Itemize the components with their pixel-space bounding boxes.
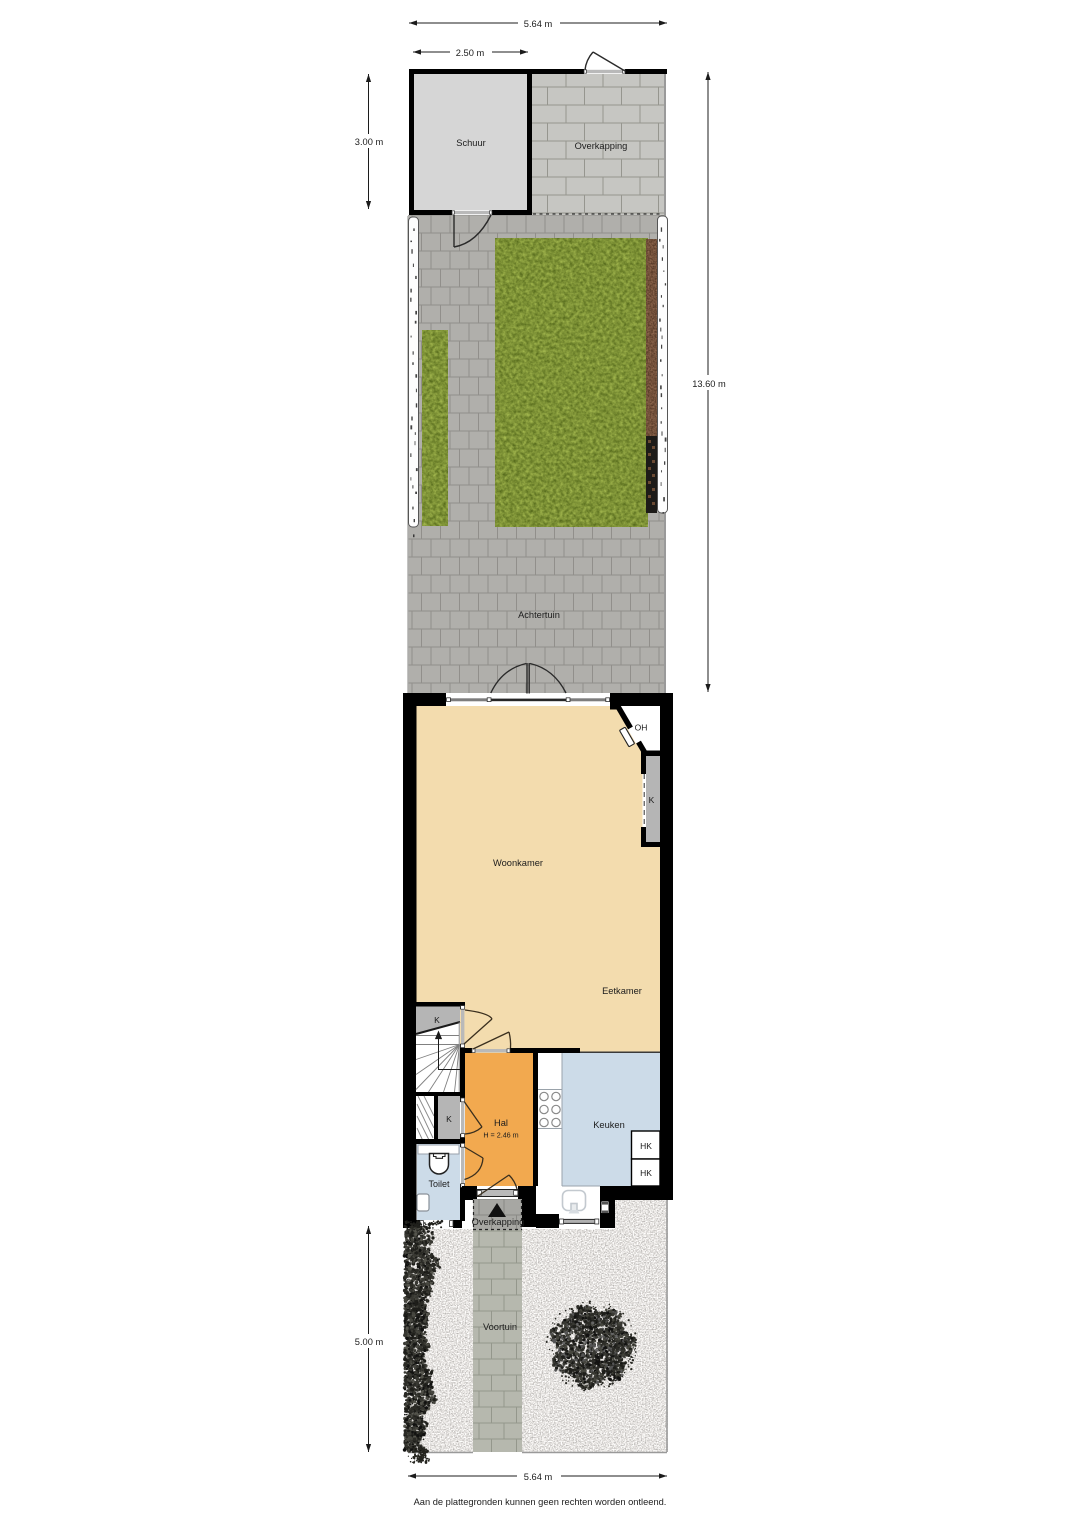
svg-text:HK: HK xyxy=(640,1168,652,1178)
svg-text:Achtertuin: Achtertuin xyxy=(518,610,560,620)
svg-text:Voortuin: Voortuin xyxy=(483,1322,517,1332)
svg-text:Hal: Hal xyxy=(494,1118,508,1128)
svg-text:H = 2.46 m: H = 2.46 m xyxy=(483,1131,518,1140)
svg-text:Toilet: Toilet xyxy=(428,1179,450,1189)
svg-text:Overkapping: Overkapping xyxy=(575,141,628,151)
svg-text:Overkapping: Overkapping xyxy=(472,1217,525,1227)
svg-text:K: K xyxy=(446,1114,452,1124)
svg-text:5.64 m: 5.64 m xyxy=(524,19,553,29)
svg-text:Keuken: Keuken xyxy=(593,1120,625,1130)
svg-text:13.60 m: 13.60 m xyxy=(692,379,726,389)
svg-text:5.00 m: 5.00 m xyxy=(355,1337,384,1347)
svg-text:3.00 m: 3.00 m xyxy=(355,137,384,147)
svg-text:Aan de plattegronden kunnen ge: Aan de plattegronden kunnen geen rechten… xyxy=(414,1497,667,1507)
svg-text:HK: HK xyxy=(640,1141,652,1151)
svg-text:5.64 m: 5.64 m xyxy=(524,1472,553,1482)
svg-text:OH: OH xyxy=(635,723,648,733)
svg-text:Schuur: Schuur xyxy=(456,138,485,148)
svg-text:Woonkamer: Woonkamer xyxy=(493,858,543,868)
svg-text:2.50 m: 2.50 m xyxy=(456,48,485,58)
svg-text:K: K xyxy=(434,1015,440,1025)
svg-text:K: K xyxy=(649,795,655,805)
svg-text:Eetkamer: Eetkamer xyxy=(602,986,642,996)
